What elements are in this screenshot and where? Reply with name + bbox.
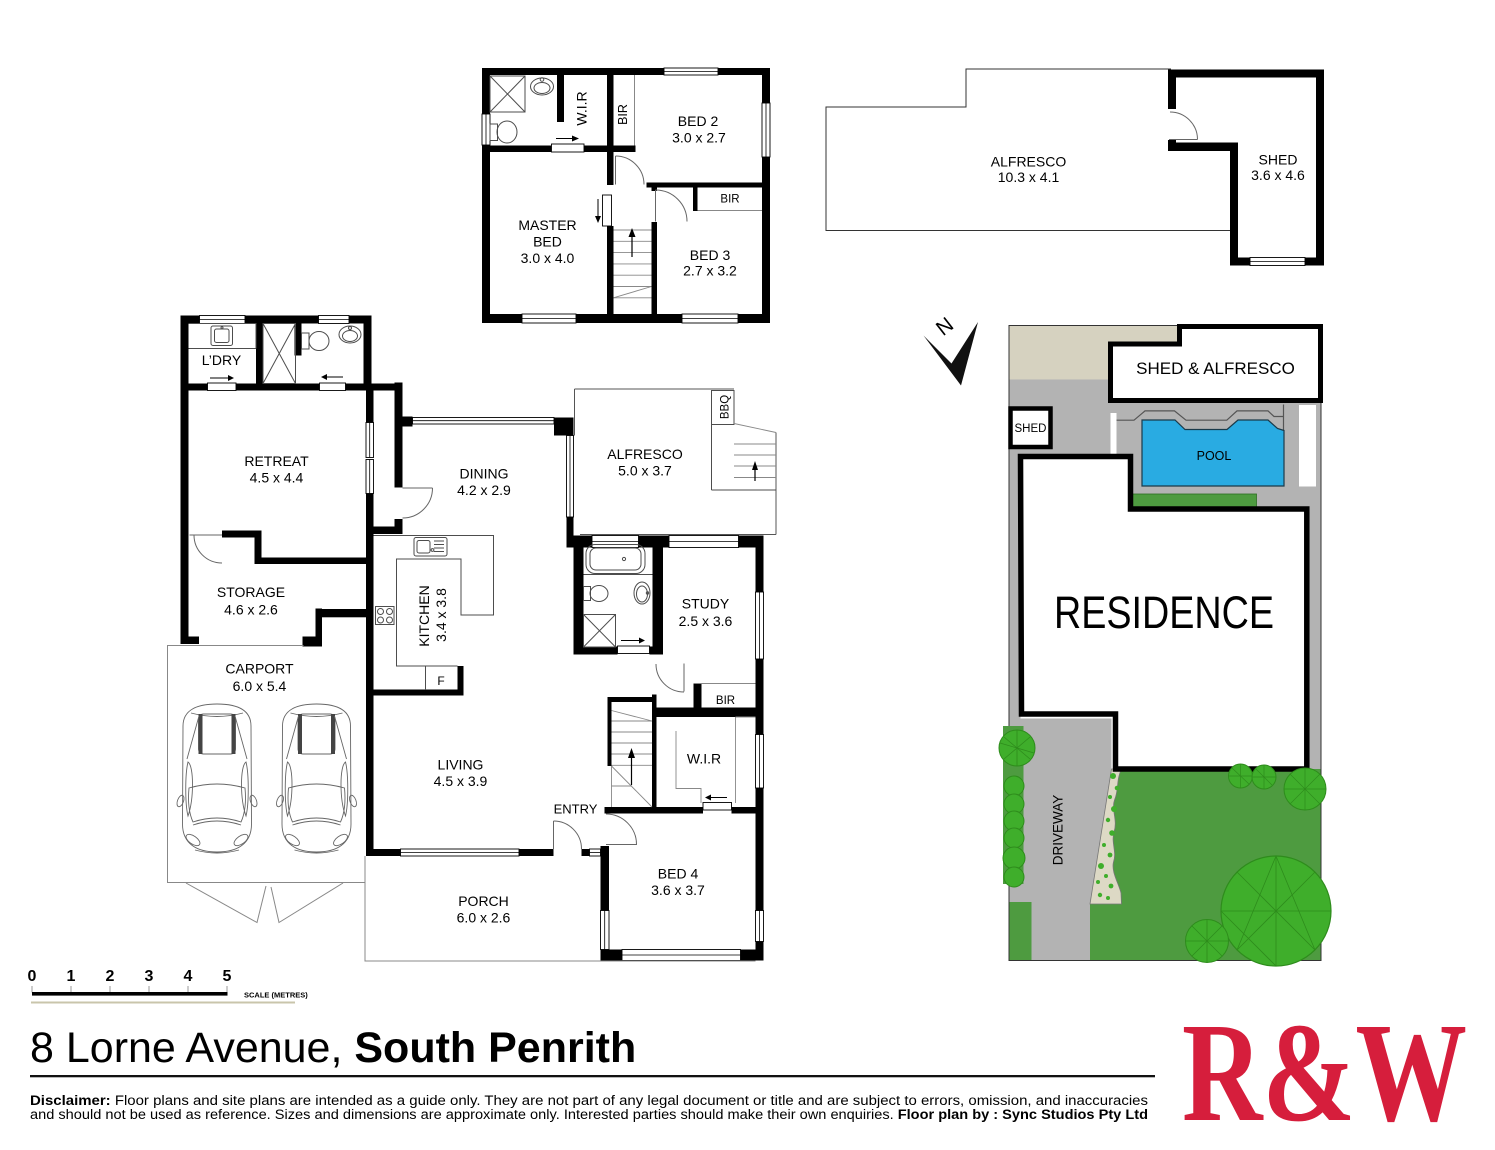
svg-text:6.0 x 2.6: 6.0 x 2.6	[457, 910, 511, 926]
svg-text:RETREAT: RETREAT	[244, 453, 309, 469]
svg-text:RESIDENCE: RESIDENCE	[1054, 587, 1274, 638]
svg-text:3.6 x 4.6: 3.6 x 4.6	[1251, 167, 1305, 183]
svg-text:4.6 x 2.6: 4.6 x 2.6	[224, 602, 278, 618]
svg-text:BED 3: BED 3	[690, 247, 731, 263]
svg-text:ALFRESCO: ALFRESCO	[607, 446, 683, 462]
svg-text:POOL: POOL	[1197, 449, 1232, 463]
svg-text:BIR: BIR	[716, 695, 735, 707]
svg-text:2.7 x 3.2: 2.7 x 3.2	[683, 263, 737, 279]
svg-text:N: N	[932, 313, 958, 340]
svg-text:LIVING: LIVING	[438, 757, 484, 773]
svg-text:DINING: DINING	[460, 466, 509, 482]
svg-text:W.I.R: W.I.R	[687, 751, 721, 767]
svg-text:F: F	[437, 674, 444, 688]
svg-text:KITCHEN: KITCHEN	[416, 585, 432, 646]
svg-text:4: 4	[184, 968, 193, 985]
svg-text:3.0 x 4.0: 3.0 x 4.0	[521, 250, 575, 266]
svg-text:3.6 x 3.7: 3.6 x 3.7	[651, 882, 705, 898]
svg-text:W.I.R: W.I.R	[574, 91, 590, 125]
svg-text:3.4 x 3.8: 3.4 x 3.8	[433, 588, 449, 642]
svg-text:BIR: BIR	[720, 194, 739, 206]
svg-text:SHED & ALFRESCO: SHED & ALFRESCO	[1136, 359, 1295, 378]
svg-text:ALFRESCO: ALFRESCO	[991, 154, 1067, 170]
svg-text:10.3 x 4.1: 10.3 x 4.1	[998, 169, 1060, 185]
svg-text:STUDY: STUDY	[682, 596, 730, 612]
svg-text:8 Lorne Avenue, South Penrith: 8 Lorne Avenue, South Penrith	[30, 1024, 636, 1072]
svg-text:5.0 x 3.7: 5.0 x 3.7	[618, 463, 672, 479]
svg-text:6.0 x 5.4: 6.0 x 5.4	[233, 678, 287, 694]
svg-text:SHED: SHED	[1015, 423, 1047, 435]
svg-text:PORCH: PORCH	[458, 893, 509, 909]
svg-text:ENTRY: ENTRY	[554, 802, 598, 817]
svg-text:3.0 x 2.7: 3.0 x 2.7	[672, 130, 726, 146]
svg-text:SCALE (METRES): SCALE (METRES)	[244, 991, 308, 1000]
svg-text:5: 5	[223, 968, 232, 985]
svg-text:L’DRY: L’DRY	[202, 352, 242, 368]
svg-text:4.5 x 4.4: 4.5 x 4.4	[250, 470, 304, 486]
svg-text:BIR: BIR	[616, 104, 630, 125]
svg-text:BED: BED	[533, 234, 562, 250]
svg-text:DRIVEWAY: DRIVEWAY	[1051, 795, 1066, 866]
svg-text:2: 2	[106, 968, 115, 985]
svg-text:STORAGE: STORAGE	[217, 584, 285, 600]
svg-text:BBQ: BBQ	[720, 395, 732, 419]
svg-text:4.5 x 3.9: 4.5 x 3.9	[434, 773, 488, 789]
svg-text:R&W: R&W	[1182, 993, 1467, 1150]
svg-text:3: 3	[145, 968, 154, 985]
svg-text:MASTER: MASTER	[518, 217, 576, 233]
svg-text:4.2 x 2.9: 4.2 x 2.9	[457, 482, 511, 498]
svg-text:2.5 x 3.6: 2.5 x 3.6	[679, 613, 733, 629]
svg-text:1: 1	[67, 968, 76, 985]
svg-text:SHED: SHED	[1259, 152, 1298, 168]
svg-text:Disclaimer: Floor plans and si: Disclaimer: Floor plans and site plans a…	[30, 1093, 1148, 1108]
svg-text:CARPORT: CARPORT	[225, 661, 294, 677]
svg-text:BED 2: BED 2	[678, 113, 719, 129]
svg-text:BED 4: BED 4	[658, 866, 699, 882]
svg-text:and should not be used as refe: and should not be used as reference. Siz…	[30, 1107, 1148, 1122]
svg-text:0: 0	[28, 968, 37, 985]
